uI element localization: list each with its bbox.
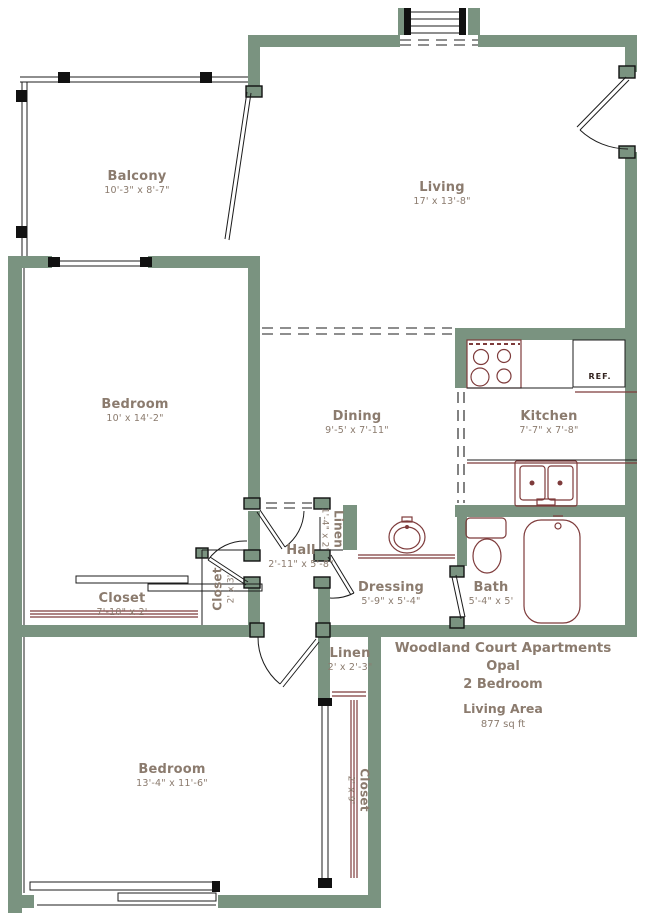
room-dims: 2'-11" x 5'-8" — [268, 560, 334, 571]
wall-segment — [455, 328, 637, 340]
room-name: Linen — [331, 508, 345, 551]
toilet-icon — [466, 518, 506, 573]
room-label-closet-hall: Closet 2' x 3' — [211, 567, 236, 610]
room-dims: 1'-4" x 2' — [319, 508, 329, 551]
wall-segment — [8, 625, 254, 637]
room-dims: 10' x 14'-2" — [101, 414, 168, 425]
room-label-bedroom2: Bedroom 13'-4" x 11'-6" — [136, 763, 208, 790]
room-name: Dressing — [358, 581, 424, 596]
floor-plan: Balcony 10'-3" x 8'-7" Living 17' x 13'-… — [0, 0, 646, 920]
room-name: Dining — [325, 410, 389, 425]
room-dims: 2' x 9' — [345, 768, 355, 811]
title-area-label: Living Area — [463, 701, 543, 716]
wall-segment — [252, 35, 400, 47]
room-dims: 2' x 3' — [226, 567, 236, 610]
room-label-living: Living 17' x 13'-8" — [413, 181, 470, 208]
wall-segment — [468, 8, 480, 35]
room-name: Closet — [211, 567, 225, 610]
wall-segment — [625, 505, 637, 637]
wall-segment — [455, 340, 467, 388]
room-name: Closet — [96, 592, 147, 607]
wall-segment — [148, 256, 260, 268]
title-unit-type: 2 Bedroom — [463, 677, 542, 692]
floor-plan-drawing — [0, 0, 646, 920]
door-jamb — [244, 550, 260, 561]
bedroom1-window — [48, 257, 152, 267]
room-label-kitchen: Kitchen 7'-7" x 7'-8" — [519, 410, 578, 437]
wall-segment — [455, 505, 637, 517]
door-jamb — [314, 577, 330, 588]
windows — [16, 8, 478, 905]
room-dims: 7'-10" x 2' — [96, 608, 147, 619]
entry-door — [577, 77, 629, 149]
room-dims: 13'-4" x 11'-6" — [136, 779, 208, 790]
room-label-bedroom1: Bedroom 10' x 14'-2" — [101, 398, 168, 425]
kitchen-sink-icon — [515, 461, 577, 506]
door-jamb — [450, 566, 464, 577]
door-jamb — [246, 86, 262, 97]
room-label-dressing: Dressing 5'-9" x 5'-4" — [358, 581, 424, 608]
room-name: Living — [413, 181, 470, 196]
door-jamb — [244, 577, 260, 588]
room-name: Closet — [357, 768, 371, 811]
linen2-shelf — [332, 692, 366, 696]
closet3-partition — [318, 698, 332, 888]
bedroom2-sliding-window — [30, 881, 220, 905]
title-area-value: 877 sq ft — [481, 719, 525, 730]
bedroom2-door — [258, 637, 319, 687]
balcony-door — [225, 92, 251, 240]
living-bay-window — [400, 8, 478, 45]
room-name: Bath — [469, 581, 514, 596]
room-name: Balcony — [104, 170, 170, 185]
door-jamb — [450, 617, 464, 628]
bathtub-icon — [524, 516, 580, 623]
room-label-closet-bedroom1: Closet 7'-10" x 2' — [96, 592, 147, 619]
wall-segment — [248, 256, 260, 498]
wall-segment — [248, 511, 260, 550]
opening-dining-kitchen — [458, 392, 464, 503]
room-name: Linen — [328, 647, 373, 662]
refrigerator-label: REF. — [589, 372, 612, 381]
door-jamb — [250, 623, 264, 637]
room-label-balcony: Balcony 10'-3" x 8'-7" — [104, 170, 170, 197]
door-jamb — [619, 66, 635, 78]
wall-segment — [318, 588, 330, 625]
room-label-dining: Dining 9'-5' x 7'-11" — [325, 410, 389, 437]
room-label-closet-bedroom2: Closet 2' x 9' — [345, 768, 370, 811]
title-community: Woodland Court Apartments — [395, 640, 612, 656]
title-unit-name: Opal — [486, 659, 520, 674]
room-dims: 2' x 2'-3" — [328, 663, 373, 674]
room-dims: 17' x 13'-8" — [413, 197, 470, 208]
room-dims: 9'-5' x 7'-11" — [325, 426, 389, 437]
closet-fixtures — [30, 517, 366, 888]
bath-door — [452, 575, 465, 619]
wall-segment — [8, 895, 34, 908]
wall-segment — [8, 256, 22, 913]
room-dims: 5'-4" x 5' — [469, 597, 514, 608]
door-jamb — [316, 623, 330, 637]
room-dims: 7'-7" x 7'-8" — [519, 426, 578, 437]
door-jamb — [619, 146, 635, 158]
wall-segment — [248, 35, 260, 93]
wall-segment — [322, 625, 637, 637]
room-dims: 10'-3" x 8'-7" — [104, 186, 170, 197]
room-name: Kitchen — [519, 410, 578, 425]
wall-segment — [218, 895, 381, 908]
room-name: Bedroom — [101, 398, 168, 413]
balcony-top-window — [20, 72, 248, 83]
door-jamb — [244, 498, 260, 509]
stove-icon — [467, 340, 521, 388]
vanity-sink-icon — [358, 517, 455, 558]
room-label-linen-hall: Linen 1'-4" x 2' — [319, 508, 344, 551]
room-dims: 5'-9" x 5'-4" — [358, 597, 424, 608]
wall-segment — [248, 588, 260, 625]
room-label-bath: Bath 5'-4" x 5' — [469, 581, 514, 608]
room-name: Bedroom — [136, 763, 208, 778]
balcony-left-window — [16, 82, 27, 256]
wall-segment — [478, 35, 637, 47]
opening-living-dining — [262, 328, 452, 334]
room-label-linen-bedroom2: Linen 2' x 2'-3" — [328, 647, 373, 674]
opening-dining-hall — [266, 503, 312, 508]
